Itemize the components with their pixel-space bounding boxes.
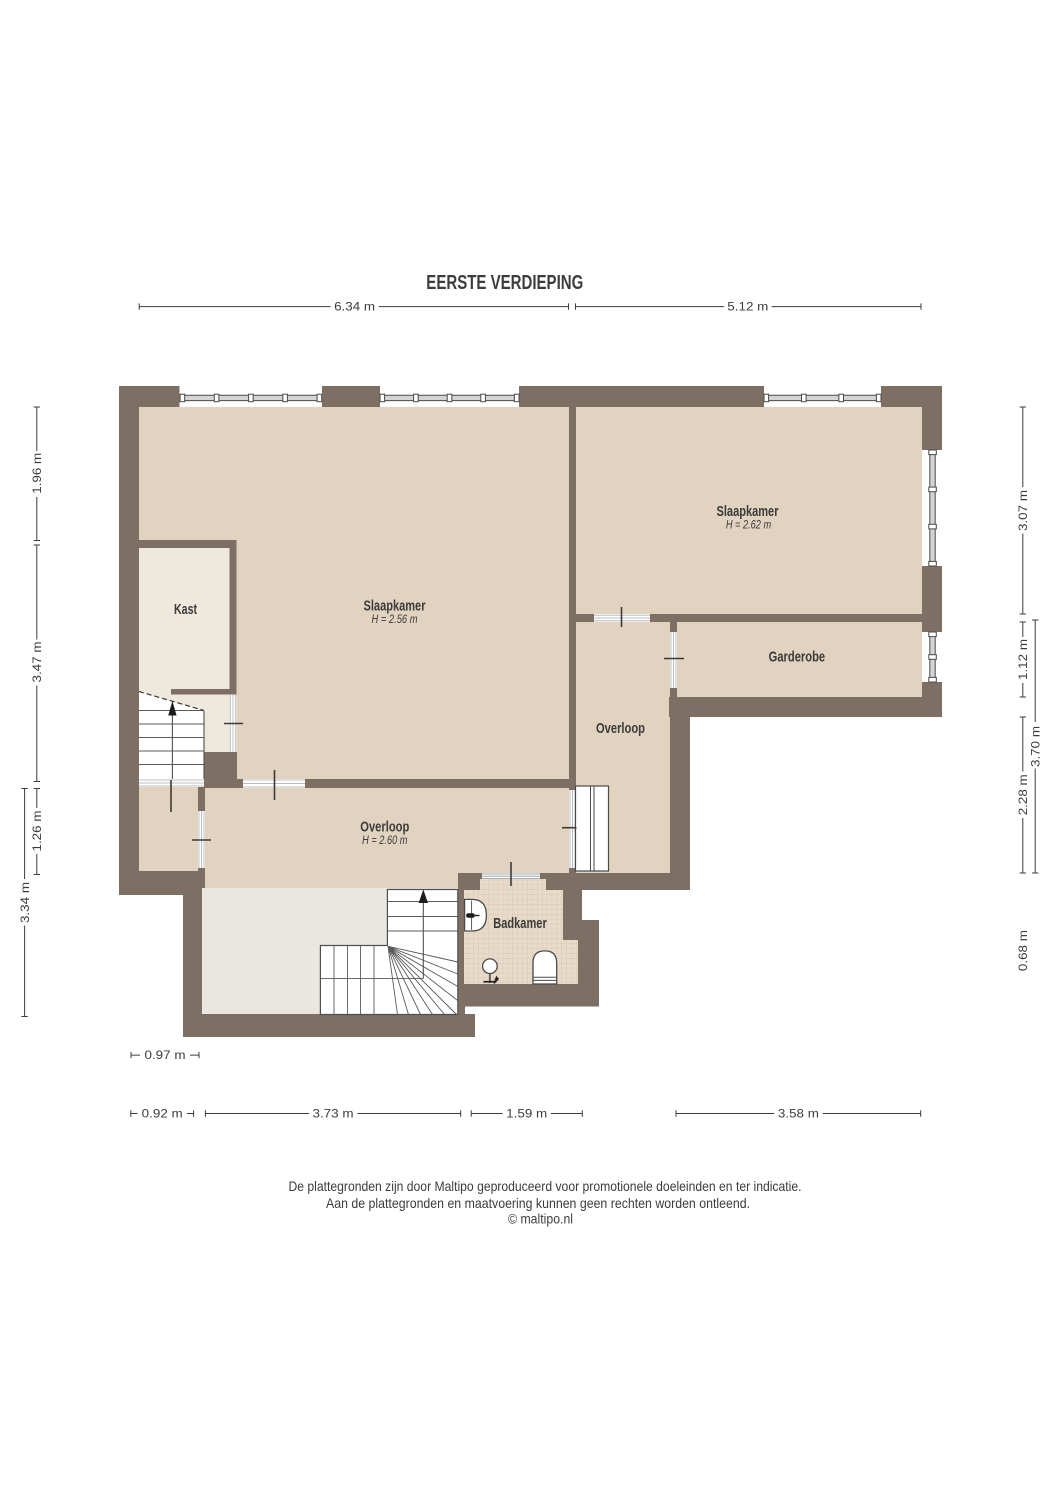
svg-text:3.73 m: 3.73 m <box>313 1107 354 1121</box>
svg-text:3.70 m: 3.70 m <box>1028 726 1042 767</box>
svg-text:3.47 m: 3.47 m <box>30 642 44 683</box>
svg-text:3.07 m: 3.07 m <box>1016 490 1030 531</box>
svg-text:Garderobe: Garderobe <box>769 649 826 666</box>
svg-text:Kast: Kast <box>174 601 197 618</box>
svg-text:Slaapkamer: Slaapkamer <box>364 598 426 615</box>
svg-text:1.26 m: 1.26 m <box>30 811 44 852</box>
svg-text:H = 2.62 m: H = 2.62 m <box>726 520 772 532</box>
svg-text:Slaapkamer: Slaapkamer <box>717 503 779 520</box>
svg-text:Badkamer: Badkamer <box>493 915 547 932</box>
svg-text:De plattegronden zijn door Mal: De plattegronden zijn door Maltipo gepro… <box>289 1178 802 1194</box>
svg-text:3.58 m: 3.58 m <box>778 1107 819 1121</box>
svg-text:0.97 m: 0.97 m <box>145 1048 186 1062</box>
svg-text:1.12 m: 1.12 m <box>1016 639 1030 680</box>
svg-text:Overloop: Overloop <box>360 819 409 836</box>
svg-text:2.28 m: 2.28 m <box>1016 774 1030 815</box>
svg-text:EERSTE VERDIEPING: EERSTE VERDIEPING <box>426 271 583 294</box>
svg-text:1.59 m: 1.59 m <box>506 1107 547 1121</box>
svg-text:H = 2.56 m: H = 2.56 m <box>372 614 418 626</box>
svg-text:© maltipo.nl: © maltipo.nl <box>508 1210 573 1226</box>
svg-text:Overloop: Overloop <box>596 720 645 737</box>
svg-text:6.34 m: 6.34 m <box>334 300 375 314</box>
svg-text:0.92 m: 0.92 m <box>142 1107 183 1121</box>
svg-text:H = 2.60 m: H = 2.60 m <box>362 835 408 847</box>
svg-text:5.12 m: 5.12 m <box>727 300 768 314</box>
svg-text:1.96 m: 1.96 m <box>30 453 44 494</box>
svg-text:0.68 m: 0.68 m <box>1016 930 1030 971</box>
svg-text:3.34 m: 3.34 m <box>18 882 32 923</box>
svg-text:Aan de plattegronden en maatvo: Aan de plattegronden en maatvoering kunn… <box>326 1195 750 1211</box>
